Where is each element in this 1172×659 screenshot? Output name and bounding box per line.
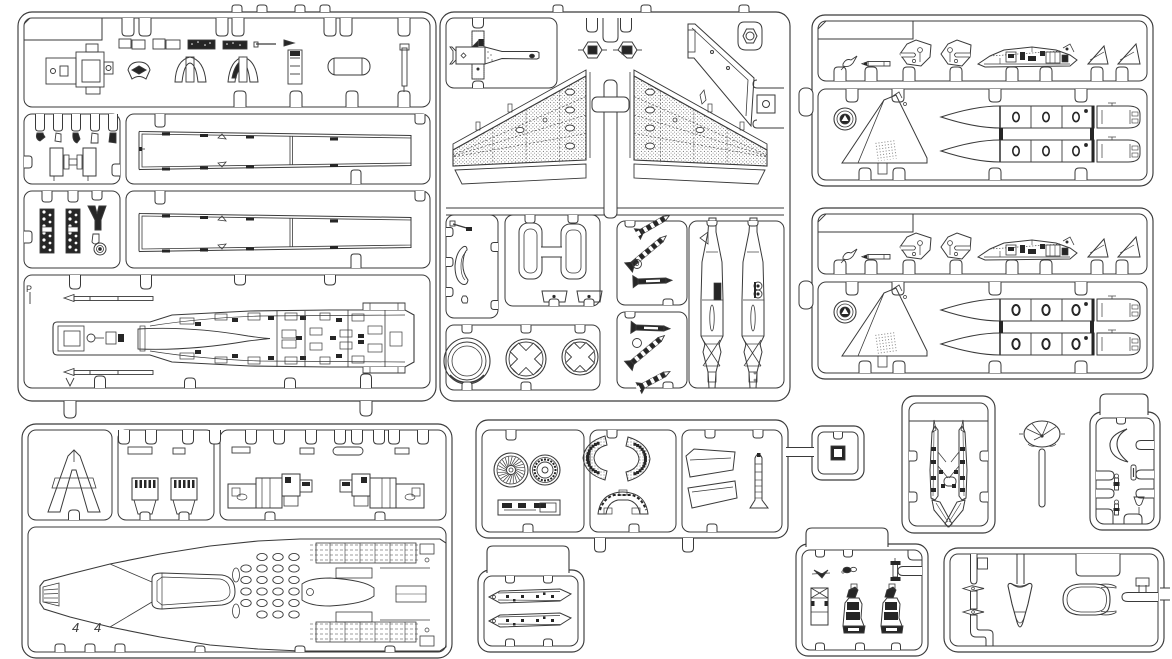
svg-text:P: P [26,284,32,294]
svg-text:4: 4 [72,620,79,635]
svg-text:4: 4 [94,620,101,635]
